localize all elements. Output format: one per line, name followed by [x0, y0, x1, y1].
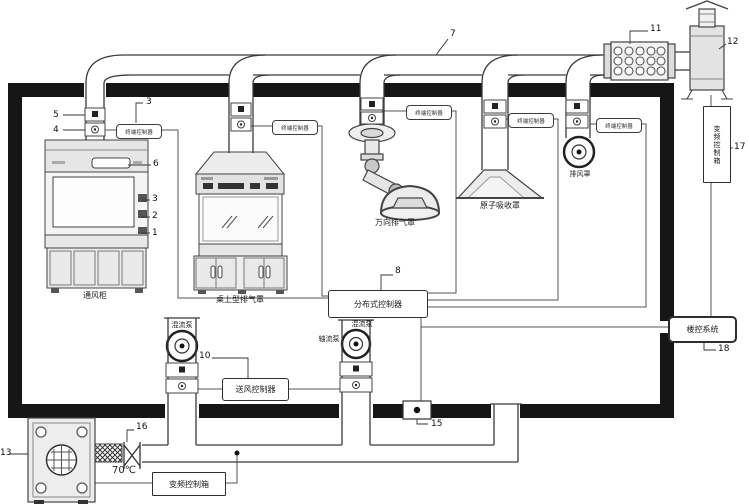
supply-air-controller: 送风控制器 [222, 378, 289, 401]
exhaust-grille [564, 137, 594, 167]
supply-fan-center-side-label: 轴流泵 [312, 336, 346, 343]
vfd-control-box-vertical-text: 变频控制箱 [712, 125, 722, 165]
diagram-line-art [0, 0, 750, 504]
terminal-controller-1: 终端控制器 [116, 124, 162, 139]
callout-1: 1 [152, 228, 158, 238]
callout-16: 16 [136, 422, 147, 432]
vfd-control-box-vertical: 变频控制箱 [703, 106, 731, 183]
canopy-hood [456, 170, 544, 198]
callout-15: 15 [431, 419, 442, 429]
fire-damper-temp-label: 70℃ [106, 466, 142, 477]
callout-4: 4 [53, 125, 59, 135]
vfd-control-box: 变频控制箱 [152, 472, 226, 496]
terminal-controller-5: 终端控制器 [596, 118, 642, 133]
bench-top-hood [194, 152, 287, 294]
callout-3-side: 3 [152, 194, 158, 204]
distributed-controller: 分布式控制器 [328, 290, 428, 318]
duct-valve-boxes [85, 98, 588, 393]
callout-5: 5 [53, 110, 59, 120]
callout-2: 2 [152, 211, 158, 221]
callout-10: 10 [199, 351, 210, 361]
callout-6: 6 [153, 159, 159, 169]
roof-exhaust-fan [675, 1, 733, 99]
silencer [604, 42, 675, 80]
bench-hood-label: 桌上型排气罩 [195, 296, 285, 304]
control-wiring [95, 95, 711, 483]
terminal-controller-4: 终端控制器 [508, 113, 554, 128]
building-control-system: 楼控系统 [668, 316, 737, 343]
callout-3: 3 [146, 97, 152, 107]
wall-pressure-sensor [403, 401, 431, 419]
callout-12: 12 [727, 37, 738, 47]
universal-hood-label: 万向排气罩 [365, 219, 425, 227]
supply-air-unit [28, 418, 95, 504]
flexible-connector [95, 444, 122, 462]
callout-7: 7 [450, 29, 456, 39]
supply-fan-left-label: 混流泵 [160, 322, 204, 329]
wire-junction-dot [235, 451, 240, 456]
callout-11: 11 [650, 24, 661, 34]
terminal-controller-3: 终端控制器 [406, 105, 452, 120]
callout-17: 17 [734, 142, 745, 152]
fume-hood-label: 通风柜 [65, 292, 125, 300]
callout-13: 13 [0, 448, 11, 458]
supply-fan-center [342, 330, 370, 358]
callout-18: 18 [718, 344, 729, 354]
supply-fan-left [167, 331, 197, 361]
canopy-hood-label: 原子吸收罩 [468, 202, 532, 210]
fume-hood [45, 140, 148, 293]
exhaust-grille-label: 排风罩 [556, 171, 604, 178]
terminal-controller-2: 终端控制器 [272, 120, 318, 135]
callout-8: 8 [395, 266, 401, 276]
supply-fan-center-label: 混流泵 [340, 321, 384, 328]
universal-extraction-arm [349, 124, 439, 220]
diagram-canvas: 5 4 3 6 3 2 1 7 8 10 11 12 13 15 16 17 1… [0, 0, 750, 504]
